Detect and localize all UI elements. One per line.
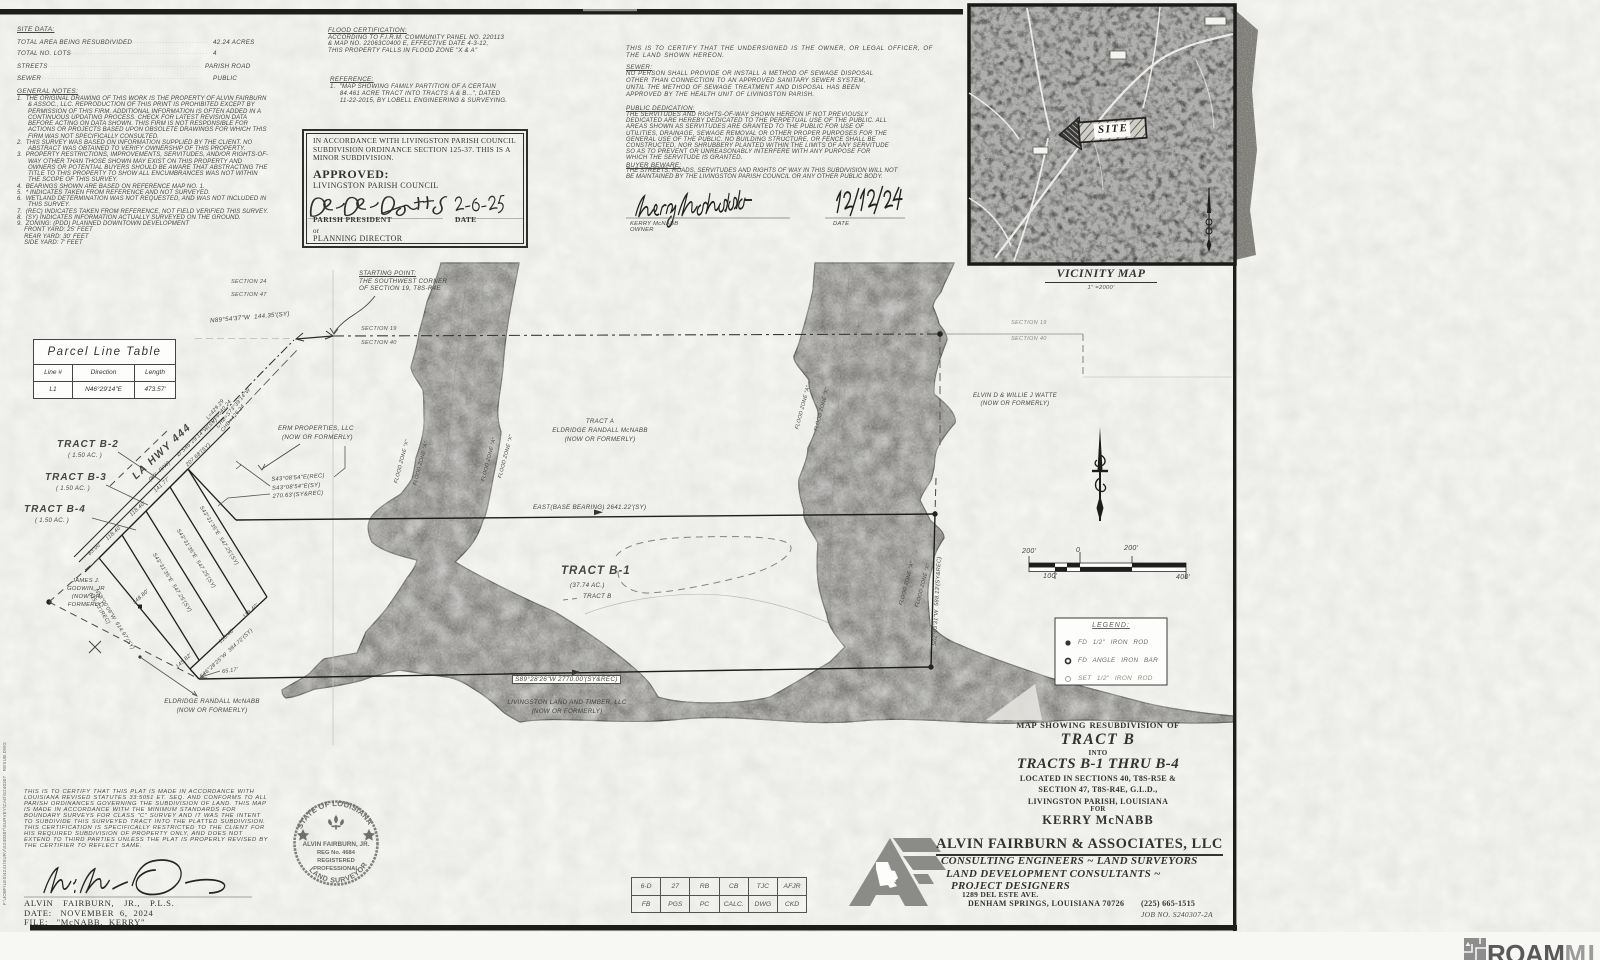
svg-text:REG No. 4684: REG No. 4684 [317, 850, 356, 856]
svg-text:REGISTERED: REGISTERED [317, 858, 355, 864]
svg-text:PROFESSIONAL: PROFESSIONAL [313, 866, 359, 872]
svg-text:ALVIN FAIRBURN, JR.: ALVIN FAIRBURN, JR. [303, 841, 370, 848]
